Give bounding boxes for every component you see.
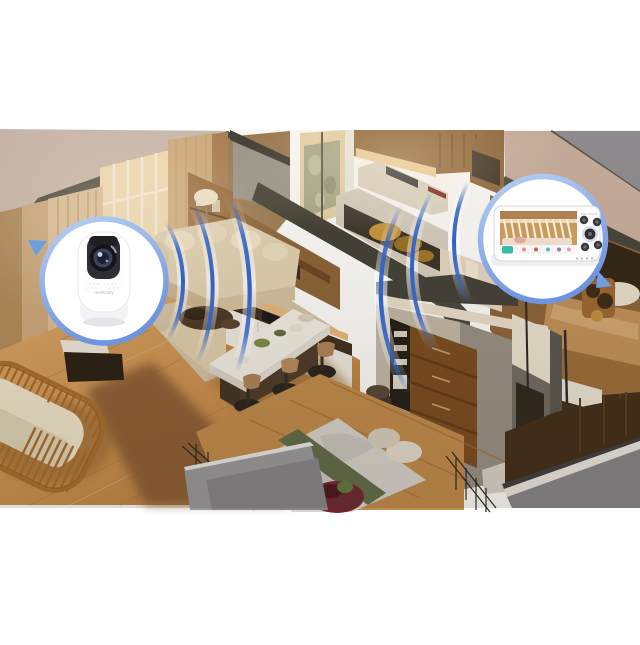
svg-text:momcozy: momcozy bbox=[94, 290, 114, 295]
svg-text:Baby Insight: Baby Insight bbox=[581, 212, 598, 216]
